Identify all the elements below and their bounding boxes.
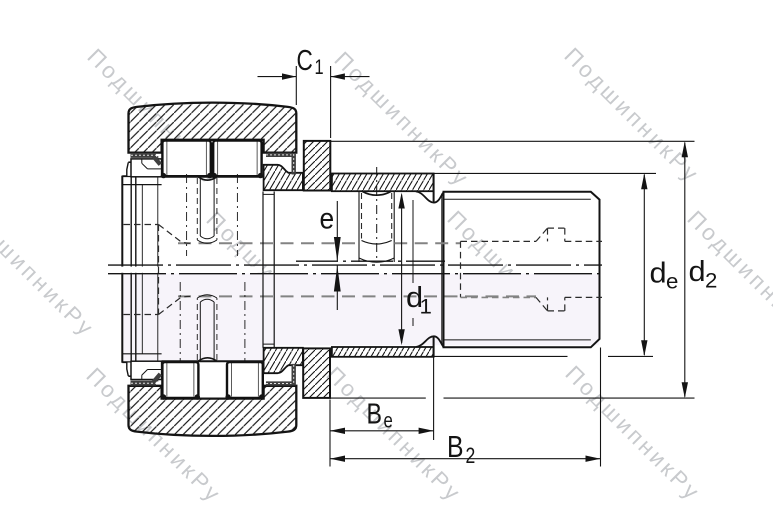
svg-text:B: B	[447, 429, 464, 463]
svg-text:e: e	[384, 410, 393, 433]
svg-text:C: C	[297, 43, 313, 76]
svg-text:B: B	[367, 397, 382, 430]
svg-text:1: 1	[420, 294, 432, 318]
svg-text:1: 1	[315, 55, 324, 78]
svg-text:2: 2	[466, 444, 476, 468]
svg-text:e: e	[666, 269, 678, 293]
svg-text:e: e	[320, 201, 335, 235]
svg-text:d: d	[650, 257, 667, 289]
svg-text:2: 2	[705, 268, 717, 292]
svg-text:d: d	[689, 256, 706, 288]
